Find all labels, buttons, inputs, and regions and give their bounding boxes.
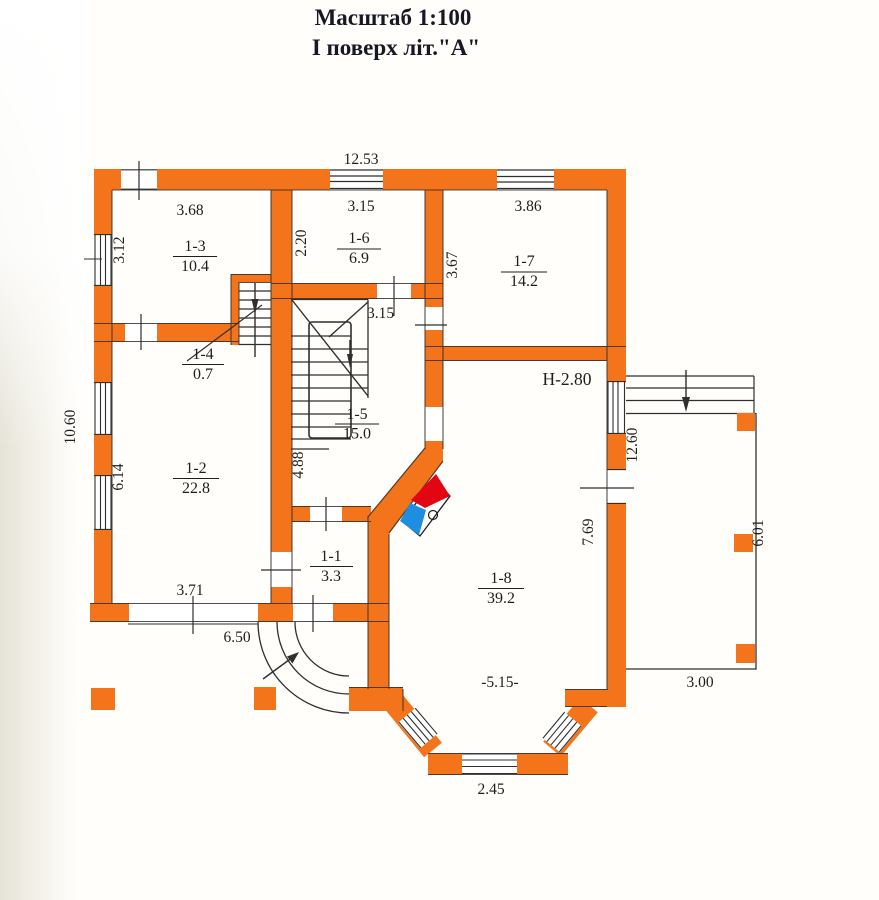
- svg-text:Масштаб 1:100: Масштаб 1:100: [315, 5, 472, 30]
- svg-text:3.15: 3.15: [347, 198, 374, 215]
- svg-text:12.60: 12.60: [624, 427, 641, 462]
- svg-text:4.88: 4.88: [290, 451, 307, 478]
- svg-text:1-1: 1-1: [320, 548, 341, 565]
- svg-text:15.0: 15.0: [343, 426, 371, 443]
- svg-text:-5.15-: -5.15-: [481, 674, 518, 691]
- svg-text:3.15: 3.15: [367, 305, 394, 322]
- svg-text:1-8: 1-8: [490, 570, 511, 587]
- svg-text:3.68: 3.68: [176, 202, 203, 219]
- svg-text:6.50: 6.50: [223, 629, 250, 646]
- svg-text:1-4: 1-4: [192, 346, 213, 363]
- svg-text:10.60: 10.60: [62, 409, 79, 444]
- svg-text:І поверх літ."А": І поверх літ."А": [312, 35, 480, 60]
- svg-text:1-3: 1-3: [184, 238, 205, 255]
- svg-text:2.20: 2.20: [293, 229, 310, 256]
- svg-text:0.7: 0.7: [193, 366, 213, 383]
- svg-text:6.9: 6.9: [349, 250, 369, 267]
- svg-text:6.14: 6.14: [110, 463, 127, 490]
- svg-text:1-6: 1-6: [348, 230, 369, 247]
- svg-text:Н-2.80: Н-2.80: [542, 369, 591, 389]
- svg-text:39.2: 39.2: [487, 590, 515, 607]
- svg-text:12.53: 12.53: [344, 151, 379, 168]
- svg-text:14.2: 14.2: [510, 273, 538, 290]
- svg-text:3.71: 3.71: [176, 582, 203, 599]
- svg-text:10.4: 10.4: [181, 258, 209, 275]
- svg-text:6.01: 6.01: [750, 519, 767, 546]
- svg-text:3.12: 3.12: [111, 236, 128, 263]
- svg-text:3.00: 3.00: [686, 674, 713, 691]
- svg-text:22.8: 22.8: [182, 480, 210, 497]
- svg-text:1-7: 1-7: [513, 253, 534, 270]
- svg-text:7.69: 7.69: [580, 518, 597, 545]
- svg-text:3.86: 3.86: [514, 198, 541, 215]
- svg-text:1-5: 1-5: [346, 406, 367, 423]
- svg-text:3.3: 3.3: [321, 568, 341, 585]
- svg-text:3.67: 3.67: [444, 251, 461, 278]
- svg-text:1-2: 1-2: [185, 460, 206, 477]
- svg-text:2.45: 2.45: [477, 781, 504, 798]
